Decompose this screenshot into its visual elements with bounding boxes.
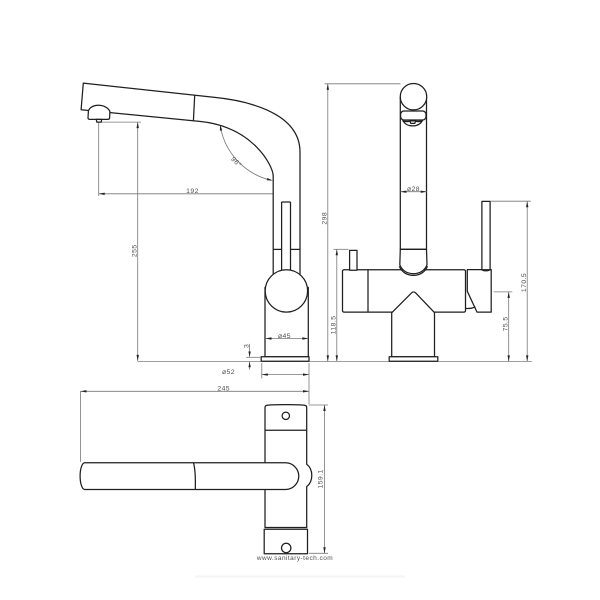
svg-text:⌀45: ⌀45 — [278, 333, 291, 340]
svg-text:www.sanitary-tech.com: www.sanitary-tech.com — [256, 555, 333, 562]
svg-text:⌀28: ⌀28 — [407, 186, 420, 193]
svg-text:298: 298 — [322, 212, 329, 225]
svg-text:255: 255 — [132, 244, 139, 257]
svg-text:170.5: 170.5 — [521, 273, 528, 292]
svg-text:75.5: 75.5 — [503, 316, 510, 331]
svg-text:3: 3 — [244, 344, 251, 348]
svg-text:192: 192 — [186, 188, 199, 195]
svg-text:159.1: 159.1 — [317, 469, 324, 488]
svg-text:118.5: 118.5 — [331, 316, 338, 335]
svg-text:96°: 96° — [229, 155, 243, 169]
svg-text:⌀52: ⌀52 — [222, 369, 235, 376]
svg-text:245: 245 — [217, 386, 230, 393]
